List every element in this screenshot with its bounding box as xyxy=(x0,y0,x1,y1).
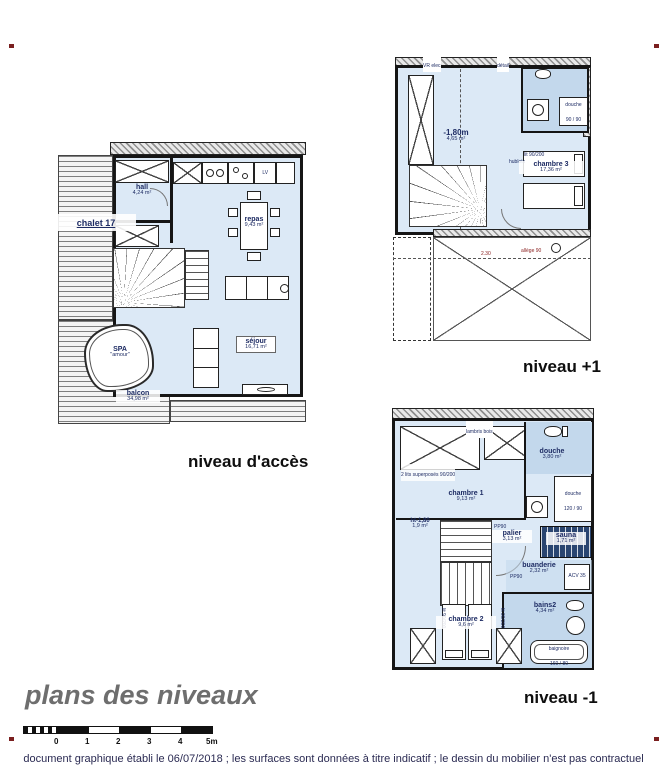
washing-machine-icon xyxy=(527,99,549,121)
note-detail: détail xyxy=(497,55,509,72)
chair-icon xyxy=(228,228,238,237)
note-text: lit 90/200 xyxy=(499,608,505,628)
registration-mark-icon xyxy=(654,737,659,741)
spa-label: SPA "amour" xyxy=(98,346,142,359)
level-label-plus1: niveau +1 xyxy=(523,357,601,377)
room-label-bains2: bains2 4,34 m² xyxy=(526,602,564,615)
pillow-icon xyxy=(445,650,463,658)
pillow-icon xyxy=(471,650,489,658)
burner-icon xyxy=(242,173,248,179)
sheet-title: plans des niveaux xyxy=(25,680,258,711)
level-label-acces: niveau d'accès xyxy=(188,452,308,472)
dimension-label: 2.30 xyxy=(481,243,491,260)
room-area: 120 / 90 xyxy=(564,506,582,512)
bathtub: baignoire 160 / 80 xyxy=(530,640,588,664)
note-text: lambris bois xyxy=(466,429,493,435)
dishwasher: LV xyxy=(254,162,275,184)
room-area: 17,36 m² xyxy=(519,168,583,174)
roof-window-icon xyxy=(551,243,561,253)
note-lambris: lambris bois xyxy=(466,421,493,438)
room-area: 9,6 m² xyxy=(436,623,496,629)
room-label-douche: douche 3,80 m² xyxy=(530,448,574,461)
room-label-repas: repas 9,43 m² xyxy=(236,216,272,229)
scale-segment xyxy=(57,727,88,733)
room-label-chambre2: chambre 2 9,6 m² xyxy=(436,616,496,629)
sofa-cushion xyxy=(194,329,218,349)
kitchen-counter: LV xyxy=(173,162,295,184)
sofa-cushion xyxy=(226,277,247,299)
room-area: 34,98 m² xyxy=(116,397,160,403)
kitchen-unit-icon xyxy=(173,162,202,184)
washing-machine-icon xyxy=(526,496,548,518)
level-label-moins1: niveau -1 xyxy=(524,688,598,708)
shower-tray: douche 90 / 90 xyxy=(559,97,588,126)
room-area: 16,71 m² xyxy=(239,345,273,351)
scale-tick: 4 xyxy=(178,737,182,746)
sofa-cushion xyxy=(194,349,218,369)
note-text: allège 90 xyxy=(521,248,541,254)
room-label-sauna: sauna 1,71 m² xyxy=(546,532,586,545)
scale-tick: 0 xyxy=(54,737,58,746)
room-area: 160 / 80 xyxy=(550,661,568,667)
washer-drum-icon xyxy=(532,104,544,116)
room-name: douche xyxy=(555,491,591,497)
sloped-ceiling-crossed xyxy=(496,628,522,664)
chair-icon xyxy=(247,191,261,200)
tv-console xyxy=(242,384,288,395)
plan-niveau-acces: LV hall 4,24 m² repas 9,43 m² xyxy=(58,142,306,424)
note-text: VR elec xyxy=(423,63,441,69)
floor-plan-sheet: LV hall 4,24 m² repas 9,43 m² xyxy=(0,0,667,782)
room-name: baignoire xyxy=(531,646,587,652)
chair-icon xyxy=(247,252,261,261)
room-name: douche xyxy=(560,102,587,108)
stair-treads xyxy=(440,562,492,606)
scale-bar: 0 1 2 3 4 5m xyxy=(23,726,219,748)
scale-tick: 3 xyxy=(147,737,151,746)
sofa xyxy=(193,328,219,388)
sink-bowl-icon xyxy=(216,169,224,177)
toilet-tank-icon xyxy=(562,426,568,437)
roof-outline xyxy=(393,237,431,341)
room-area: 1,9 m² xyxy=(402,524,438,530)
plan-niveau-plus1: -1,80m 4,65 m² douche 90 / 90 VR elec dé… xyxy=(393,57,597,367)
bed-size-label: lit 90/200 xyxy=(524,144,544,161)
room-label-buanderie: buanderie 2,32 m² xyxy=(514,562,564,575)
sink-icon xyxy=(202,162,228,184)
sofa-cushion xyxy=(247,277,268,299)
room-area: 90 / 90 xyxy=(566,117,581,123)
plan-niveau-moins1: lambris bois 2 lits superposés 90/200 ch… xyxy=(388,408,602,680)
footer-disclaimer: document graphique établi le 06/07/2018 … xyxy=(0,753,667,765)
wall-hatch xyxy=(433,229,591,237)
stair-treads xyxy=(440,520,492,562)
wall xyxy=(504,592,592,594)
note-text: détail xyxy=(497,63,509,69)
scale-segment xyxy=(88,727,119,733)
fridge-icon xyxy=(276,162,295,184)
note-bunk-beds: 2 lits superposés 90/200 xyxy=(401,464,455,481)
scale-tick: 2 xyxy=(116,737,120,746)
chalet-tag: chalet 17 xyxy=(56,214,136,231)
dishwasher-label: LV xyxy=(262,170,268,176)
sink-bowl-icon xyxy=(206,169,214,177)
dimension-text: 2.30 xyxy=(481,251,491,257)
scale-segment xyxy=(181,727,212,733)
spiral-stairs xyxy=(409,165,487,227)
registration-mark-icon xyxy=(654,44,659,48)
scale-tick: 1 xyxy=(85,737,89,746)
chalet-label: chalet 17 xyxy=(77,218,116,228)
room-area: 4,65 m² xyxy=(433,137,479,143)
room-label-low-height: ht-1,80 1,9 m² xyxy=(402,518,438,530)
scale-segment xyxy=(24,727,57,733)
registration-mark-icon xyxy=(9,44,14,48)
stove-icon xyxy=(228,162,254,184)
door-ref-label: PP90 xyxy=(494,516,506,533)
room-label-chambre1: chambre 1 9,13 m² xyxy=(438,490,494,503)
chair-icon xyxy=(270,228,280,237)
note-text: lit 90/200 xyxy=(524,152,544,158)
washer-drum-icon xyxy=(531,501,543,513)
balcony-deck xyxy=(58,155,113,320)
room-area: 9,13 m² xyxy=(438,497,494,503)
toilet-icon xyxy=(566,600,584,611)
room-area: 9,43 m² xyxy=(236,223,272,229)
closet-crossed xyxy=(408,75,434,165)
washbasin-icon xyxy=(566,616,585,635)
tv-icon xyxy=(257,387,275,392)
registration-mark-icon xyxy=(9,737,14,741)
toilet-icon xyxy=(544,426,562,437)
room-area: 4,34 m² xyxy=(526,609,564,615)
scale-bar-segments xyxy=(23,726,213,734)
balcony-deck xyxy=(170,400,306,422)
room-label-chambre3: chambre 3 17,36 m² xyxy=(519,161,583,174)
room-subname: "amour" xyxy=(98,353,142,359)
room-label-sejour: séjour 16,71 m² xyxy=(236,336,276,353)
note-allege: allège 90 xyxy=(521,240,541,257)
spa-tub: SPA "amour" xyxy=(84,324,154,392)
scale-segment xyxy=(119,727,150,733)
toilet-icon xyxy=(535,69,551,79)
spiral-stairs xyxy=(113,248,185,308)
sloped-ceiling-crossed xyxy=(410,628,436,664)
water-heater-label: ACV 35 xyxy=(565,573,589,579)
note-text: PP90 xyxy=(494,524,506,530)
sofa-cushion xyxy=(194,368,218,387)
pillow-icon xyxy=(574,186,583,206)
shower-cabin: douche 120 / 90 xyxy=(554,476,592,522)
roof-void-crossed xyxy=(433,237,591,341)
water-heater: ACV 35 xyxy=(564,564,590,590)
axis-line xyxy=(393,258,591,259)
room-label-low-height: -1,80m 4,65 m² xyxy=(433,129,479,143)
lamp-icon xyxy=(280,284,289,293)
room-area: 2,32 m² xyxy=(514,569,564,575)
room-area: 1,71 m² xyxy=(546,539,586,545)
room-label-balcon: balcon 34,98 m² xyxy=(116,390,160,403)
scale-tick: 5m xyxy=(206,737,218,746)
room-area: 3,13 m² xyxy=(492,537,532,543)
room-area: 3,80 m² xyxy=(530,455,574,461)
stair-treads xyxy=(185,250,209,300)
room-label-hall: hall 4,24 m² xyxy=(120,184,164,197)
note-text: 2 lits superposés 90/200 xyxy=(401,472,455,478)
note-vr-elec: VR elec xyxy=(423,55,441,72)
closet-crossed xyxy=(115,160,169,183)
burner-icon xyxy=(233,167,239,173)
wall-hatch xyxy=(110,142,306,155)
room-area: 4,24 m² xyxy=(120,191,164,197)
scale-segment xyxy=(150,727,181,733)
